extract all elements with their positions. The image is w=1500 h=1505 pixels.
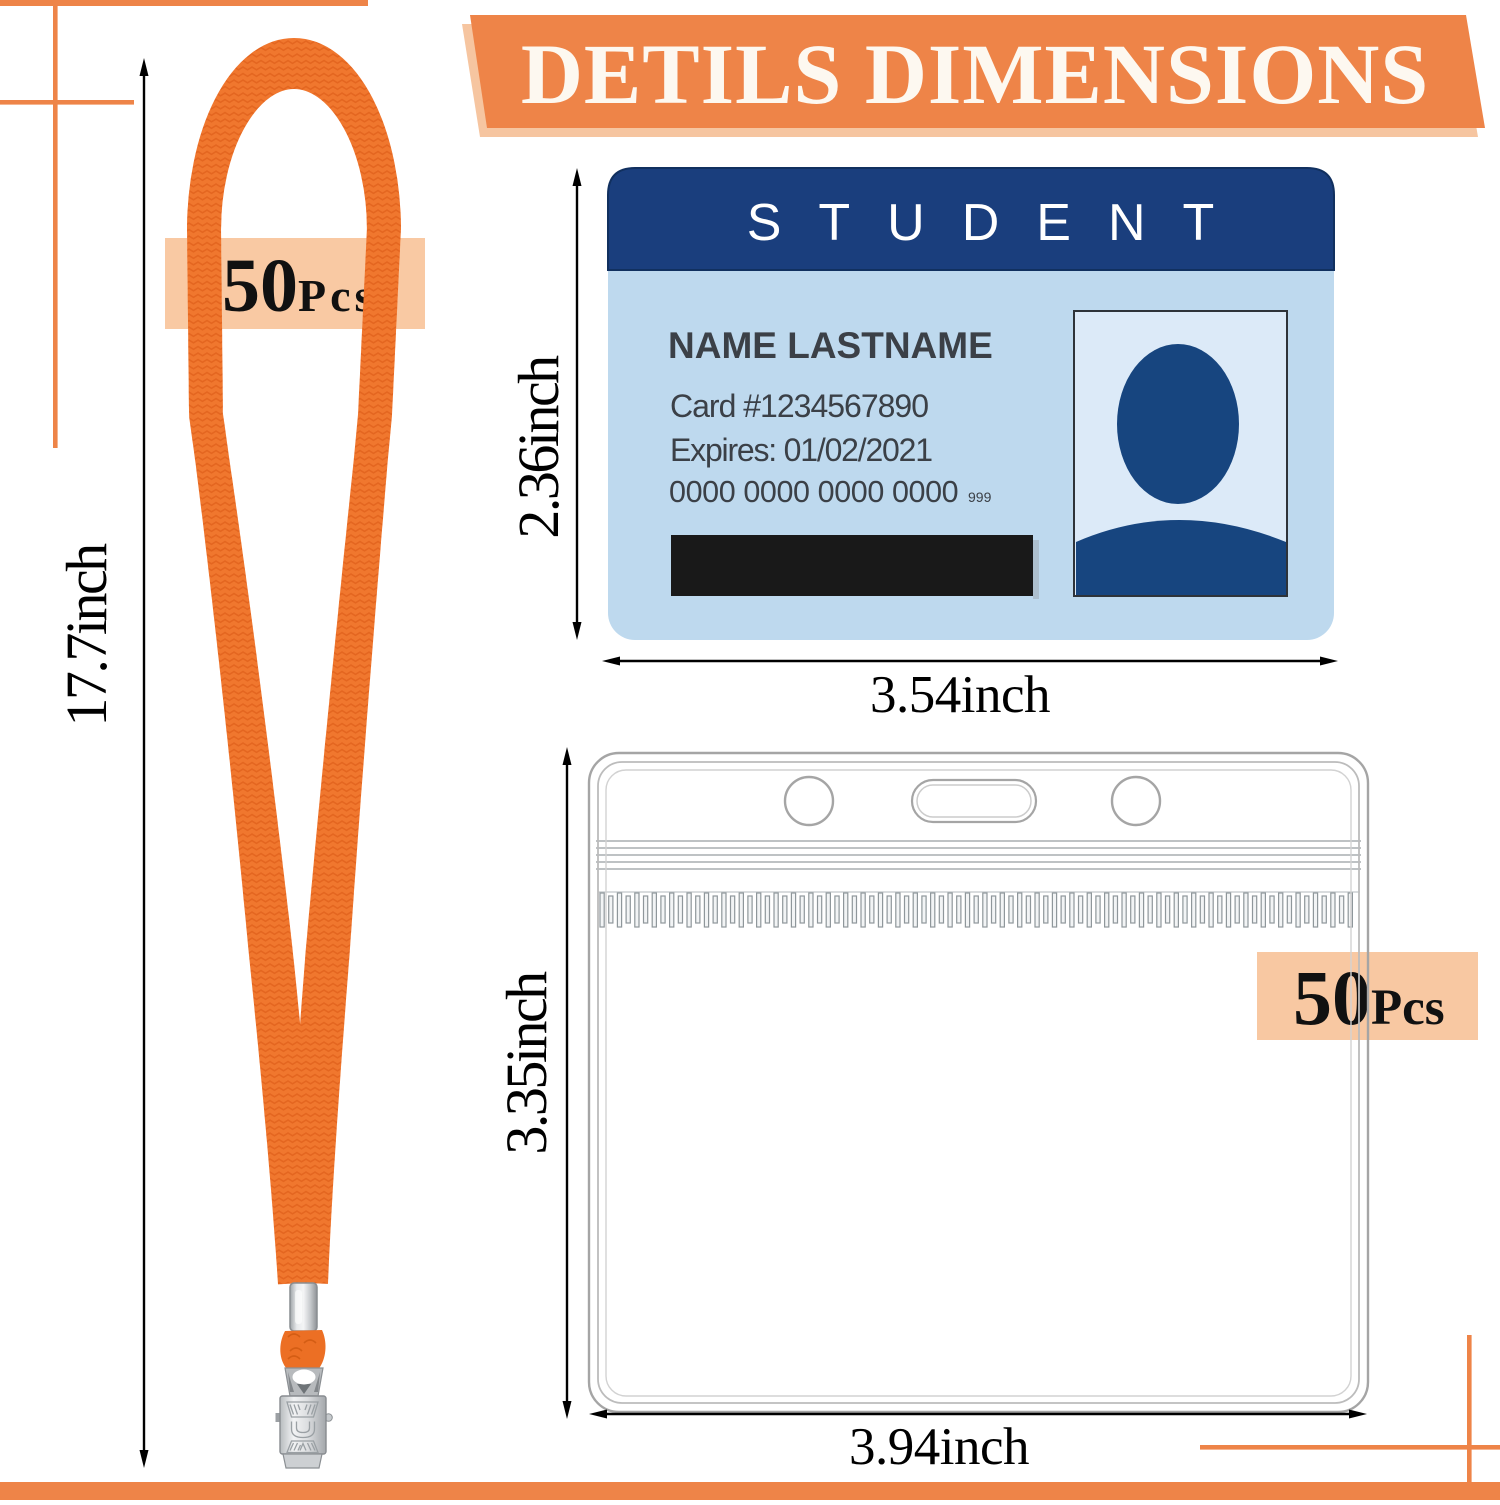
svg-text:NAME LASTNAME: NAME LASTNAME	[668, 325, 993, 366]
svg-text:3.94inch: 3.94inch	[849, 1418, 1029, 1476]
svg-text:0000 0000 0000 0000: 0000 0000 0000 0000	[669, 475, 958, 509]
svg-text:3.35inch: 3.35inch	[494, 971, 559, 1155]
svg-text:17.7inch: 17.7inch	[54, 543, 119, 727]
svg-text:Card #1234567890: Card #1234567890	[670, 388, 928, 424]
svg-text:DETILS DIMENSIONS: DETILS DIMENSIONS	[521, 26, 1429, 122]
svg-text:Expires: 01/02/2021: Expires: 01/02/2021	[670, 432, 932, 468]
svg-text:2.36inch: 2.36inch	[506, 355, 571, 539]
svg-text:3.54inch: 3.54inch	[870, 666, 1050, 724]
svg-text:STUDENT: STUDENT	[747, 194, 1252, 252]
svg-text:999: 999	[968, 489, 992, 505]
